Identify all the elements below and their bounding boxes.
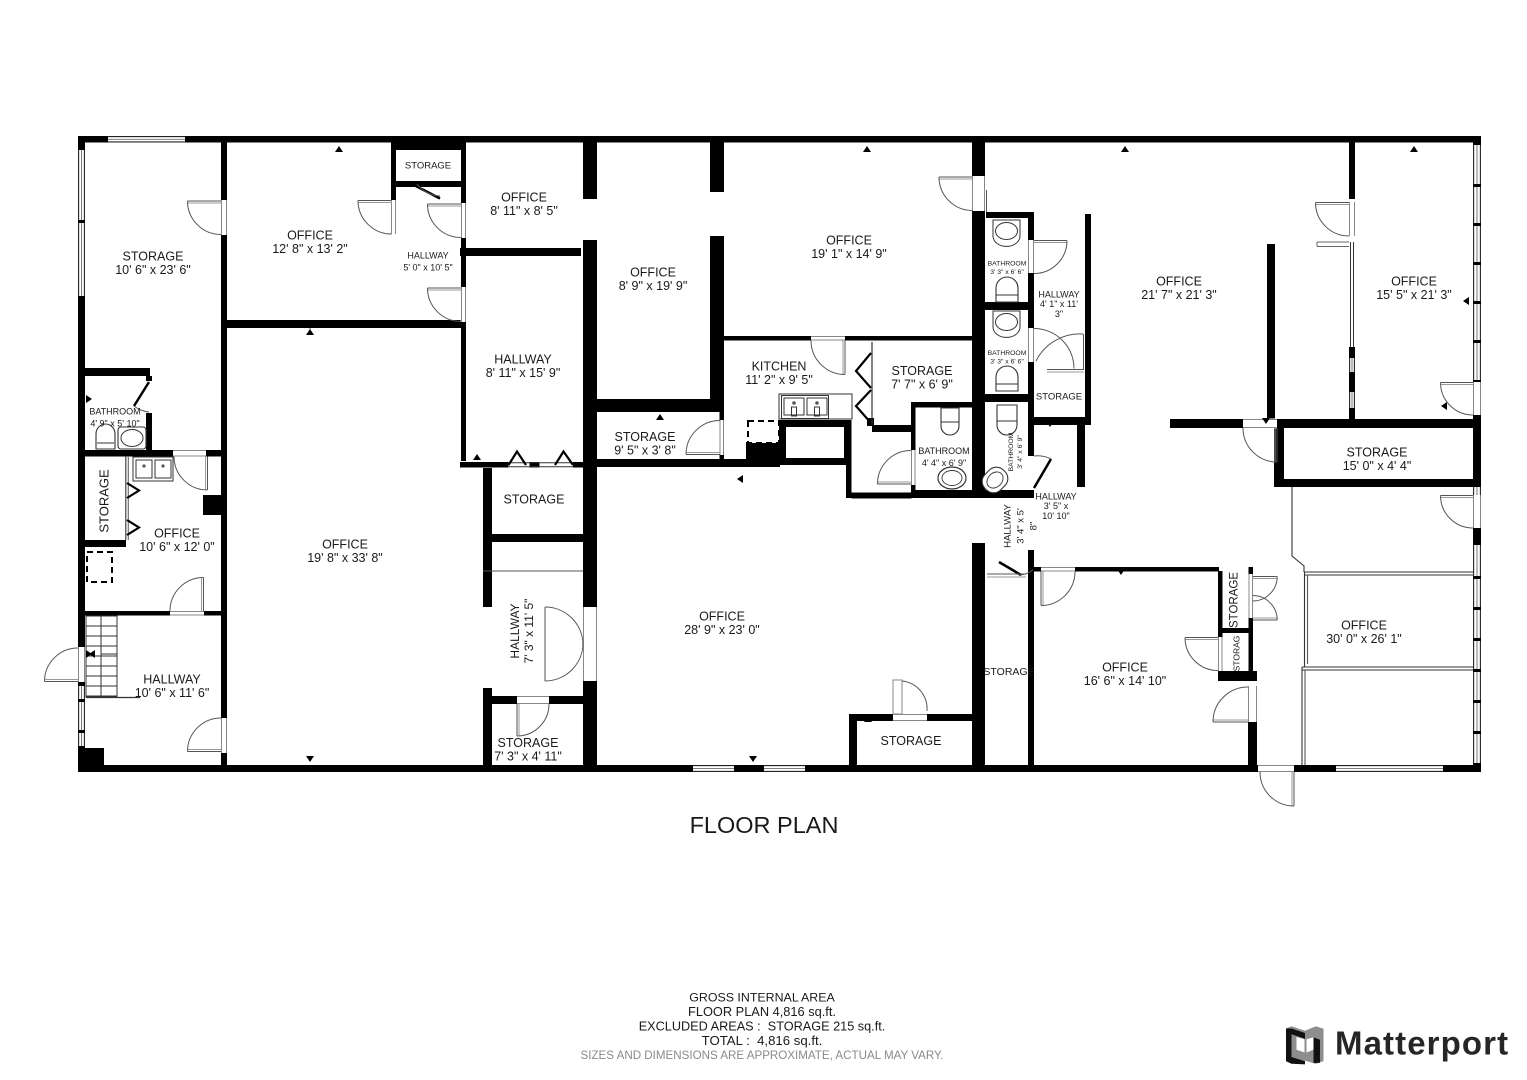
svg-text:OFFICE: OFFICE bbox=[501, 190, 547, 204]
svg-text:BATHROOM: BATHROOM bbox=[988, 260, 1027, 267]
svg-text:STORAGE: STORAGE bbox=[504, 492, 565, 506]
svg-text:TOTAL : 4,816 sq.ft.: TOTAL : 4,816 sq.ft. bbox=[702, 1033, 823, 1048]
svg-text:Matterport: Matterport bbox=[1335, 1025, 1509, 1062]
svg-text:OFFICE: OFFICE bbox=[630, 265, 676, 279]
svg-text:7' 3" x 4' 11": 7' 3" x 4' 11" bbox=[494, 749, 562, 763]
svg-text:HALLWAY: HALLWAY bbox=[1003, 504, 1014, 548]
svg-text:5' 0" x 10' 5": 5' 0" x 10' 5" bbox=[403, 262, 452, 272]
svg-text:OFFICE: OFFICE bbox=[322, 537, 368, 551]
svg-text:7' 3" x 11' 5": 7' 3" x 11' 5" bbox=[522, 599, 536, 664]
svg-text:30' 0" x 26' 1": 30' 0" x 26' 1" bbox=[1326, 632, 1402, 646]
svg-text:GROSS INTERNAL AREA: GROSS INTERNAL AREA bbox=[689, 990, 835, 1004]
svg-text:HALLWAY: HALLWAY bbox=[1035, 491, 1076, 501]
svg-text:15' 0" x 4' 4": 15' 0" x 4' 4" bbox=[1343, 459, 1412, 473]
svg-text:STORAGE: STORAGE bbox=[881, 734, 942, 748]
svg-text:STORAGE: STORAGE bbox=[892, 364, 953, 378]
svg-text:4' 4" x 6' 9": 4' 4" x 6' 9" bbox=[922, 458, 966, 468]
svg-text:11' 2" x 9' 5": 11' 2" x 9' 5" bbox=[745, 373, 813, 387]
svg-text:8' 11" x 15' 9": 8' 11" x 15' 9" bbox=[486, 366, 561, 380]
svg-text:EXCLUDED AREAS : STORAGE 215: EXCLUDED AREAS : STORAGE 215 sq.ft. bbox=[639, 1019, 886, 1033]
svg-text:10' 6" x 12' 0": 10' 6" x 12' 0" bbox=[139, 540, 215, 554]
svg-text:STORAGE: STORAGE bbox=[96, 469, 111, 533]
svg-text:3": 3" bbox=[1055, 309, 1063, 319]
svg-text:28' 9" x 23' 0": 28' 9" x 23' 0" bbox=[684, 623, 760, 637]
svg-text:STORAGE: STORAGE bbox=[405, 161, 451, 172]
svg-text:STORAGE: STORAGE bbox=[1229, 572, 1241, 628]
svg-text:FLOOR PLAN 4,816 sq.ft.: FLOOR PLAN 4,816 sq.ft. bbox=[688, 1004, 836, 1019]
svg-text:3' 3" x 6' 6": 3' 3" x 6' 6" bbox=[990, 269, 1024, 276]
svg-text:8' 11" x 8' 5": 8' 11" x 8' 5" bbox=[490, 204, 558, 218]
svg-text:19' 1" x 14' 9": 19' 1" x 14' 9" bbox=[811, 247, 887, 261]
svg-text:BATHROOM: BATHROOM bbox=[1008, 432, 1015, 471]
svg-text:STORAGE: STORAGE bbox=[498, 736, 559, 750]
svg-text:BATHROOM: BATHROOM bbox=[918, 446, 969, 456]
svg-text:STORAG: STORAG bbox=[1231, 636, 1241, 672]
svg-text:STORAGE: STORAGE bbox=[615, 430, 676, 444]
svg-text:BATHROOM: BATHROOM bbox=[988, 350, 1027, 357]
svg-text:FLOOR PLAN: FLOOR PLAN bbox=[690, 812, 839, 838]
svg-text:3' 3" x 6' 6": 3' 3" x 6' 6" bbox=[990, 358, 1024, 365]
svg-text:HALLWAY: HALLWAY bbox=[143, 672, 201, 686]
svg-text:10' 6" x 11' 6": 10' 6" x 11' 6" bbox=[135, 686, 210, 700]
svg-text:OFFICE: OFFICE bbox=[1156, 274, 1202, 288]
svg-text:8": 8" bbox=[1029, 522, 1040, 531]
svg-text:STORAGE: STORAGE bbox=[123, 249, 184, 263]
svg-text:HALLWAY: HALLWAY bbox=[407, 250, 448, 260]
svg-text:12' 8" x 13' 2": 12' 8" x 13' 2" bbox=[272, 242, 348, 256]
svg-text:3' 5" x: 3' 5" x bbox=[1044, 501, 1069, 511]
svg-text:4' 9" x 5' 10": 4' 9" x 5' 10" bbox=[90, 418, 139, 428]
svg-text:OFFICE: OFFICE bbox=[1341, 618, 1387, 632]
svg-text:3' 4" x 5': 3' 4" x 5' bbox=[1016, 508, 1027, 544]
svg-text:OFFICE: OFFICE bbox=[1102, 660, 1148, 674]
svg-text:21' 7" x 21' 3": 21' 7" x 21' 3" bbox=[1141, 288, 1217, 302]
svg-text:4' 1" x 11': 4' 1" x 11' bbox=[1040, 299, 1078, 309]
svg-text:HALLWAY: HALLWAY bbox=[494, 352, 552, 366]
svg-text:OFFICE: OFFICE bbox=[699, 609, 745, 623]
svg-text:BATHROOM: BATHROOM bbox=[89, 406, 140, 416]
svg-text:3' 4" x 6' 9": 3' 4" x 6' 9" bbox=[1017, 435, 1024, 469]
svg-text:OFFICE: OFFICE bbox=[826, 233, 872, 247]
svg-text:8' 9" x 19' 9": 8' 9" x 19' 9" bbox=[619, 279, 688, 293]
svg-text:9' 5" x 3' 8": 9' 5" x 3' 8" bbox=[614, 443, 676, 457]
svg-text:KITCHEN: KITCHEN bbox=[752, 359, 807, 373]
svg-text:10' 10": 10' 10" bbox=[1042, 511, 1069, 521]
svg-text:STORAGE: STORAGE bbox=[1036, 392, 1082, 403]
svg-text:HALLWAY: HALLWAY bbox=[508, 603, 522, 658]
svg-text:10' 6" x 23' 6": 10' 6" x 23' 6" bbox=[115, 263, 191, 277]
svg-text:HALLWAY: HALLWAY bbox=[1038, 289, 1079, 299]
svg-text:SIZES AND DIMENSIONS ARE APPRO: SIZES AND DIMENSIONS ARE APPROXIMATE, AC… bbox=[581, 1049, 944, 1062]
svg-text:OFFICE: OFFICE bbox=[154, 526, 200, 540]
svg-text:15' 5" x 21' 3": 15' 5" x 21' 3" bbox=[1376, 288, 1452, 302]
svg-text:STORAGE: STORAGE bbox=[983, 666, 1034, 678]
svg-text:19' 8" x 33' 8": 19' 8" x 33' 8" bbox=[307, 551, 383, 565]
svg-text:16' 6" x 14' 10": 16' 6" x 14' 10" bbox=[1084, 674, 1166, 688]
svg-text:OFFICE: OFFICE bbox=[287, 228, 333, 242]
svg-text:STORAGE: STORAGE bbox=[1347, 445, 1408, 459]
svg-text:7' 7" x 6' 9": 7' 7" x 6' 9" bbox=[891, 377, 953, 391]
svg-text:OFFICE: OFFICE bbox=[1391, 274, 1437, 288]
